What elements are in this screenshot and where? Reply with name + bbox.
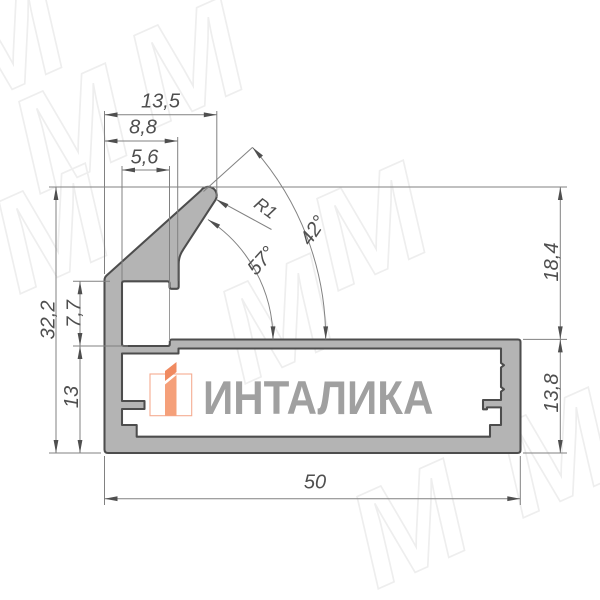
svg-text:18,4: 18,4 (541, 243, 563, 282)
svg-text:7,7: 7,7 (64, 299, 86, 328)
svg-text:13: 13 (61, 386, 83, 408)
svg-text:8,8: 8,8 (129, 117, 157, 139)
svg-text:5,6: 5,6 (131, 147, 160, 169)
svg-text:13,8: 13,8 (541, 374, 563, 413)
svg-text:13,5: 13,5 (141, 91, 181, 113)
svg-text:ИНТАЛИКА: ИНТАЛИКА (203, 373, 433, 425)
svg-text:32,2: 32,2 (38, 301, 60, 340)
svg-text:50: 50 (304, 472, 326, 494)
